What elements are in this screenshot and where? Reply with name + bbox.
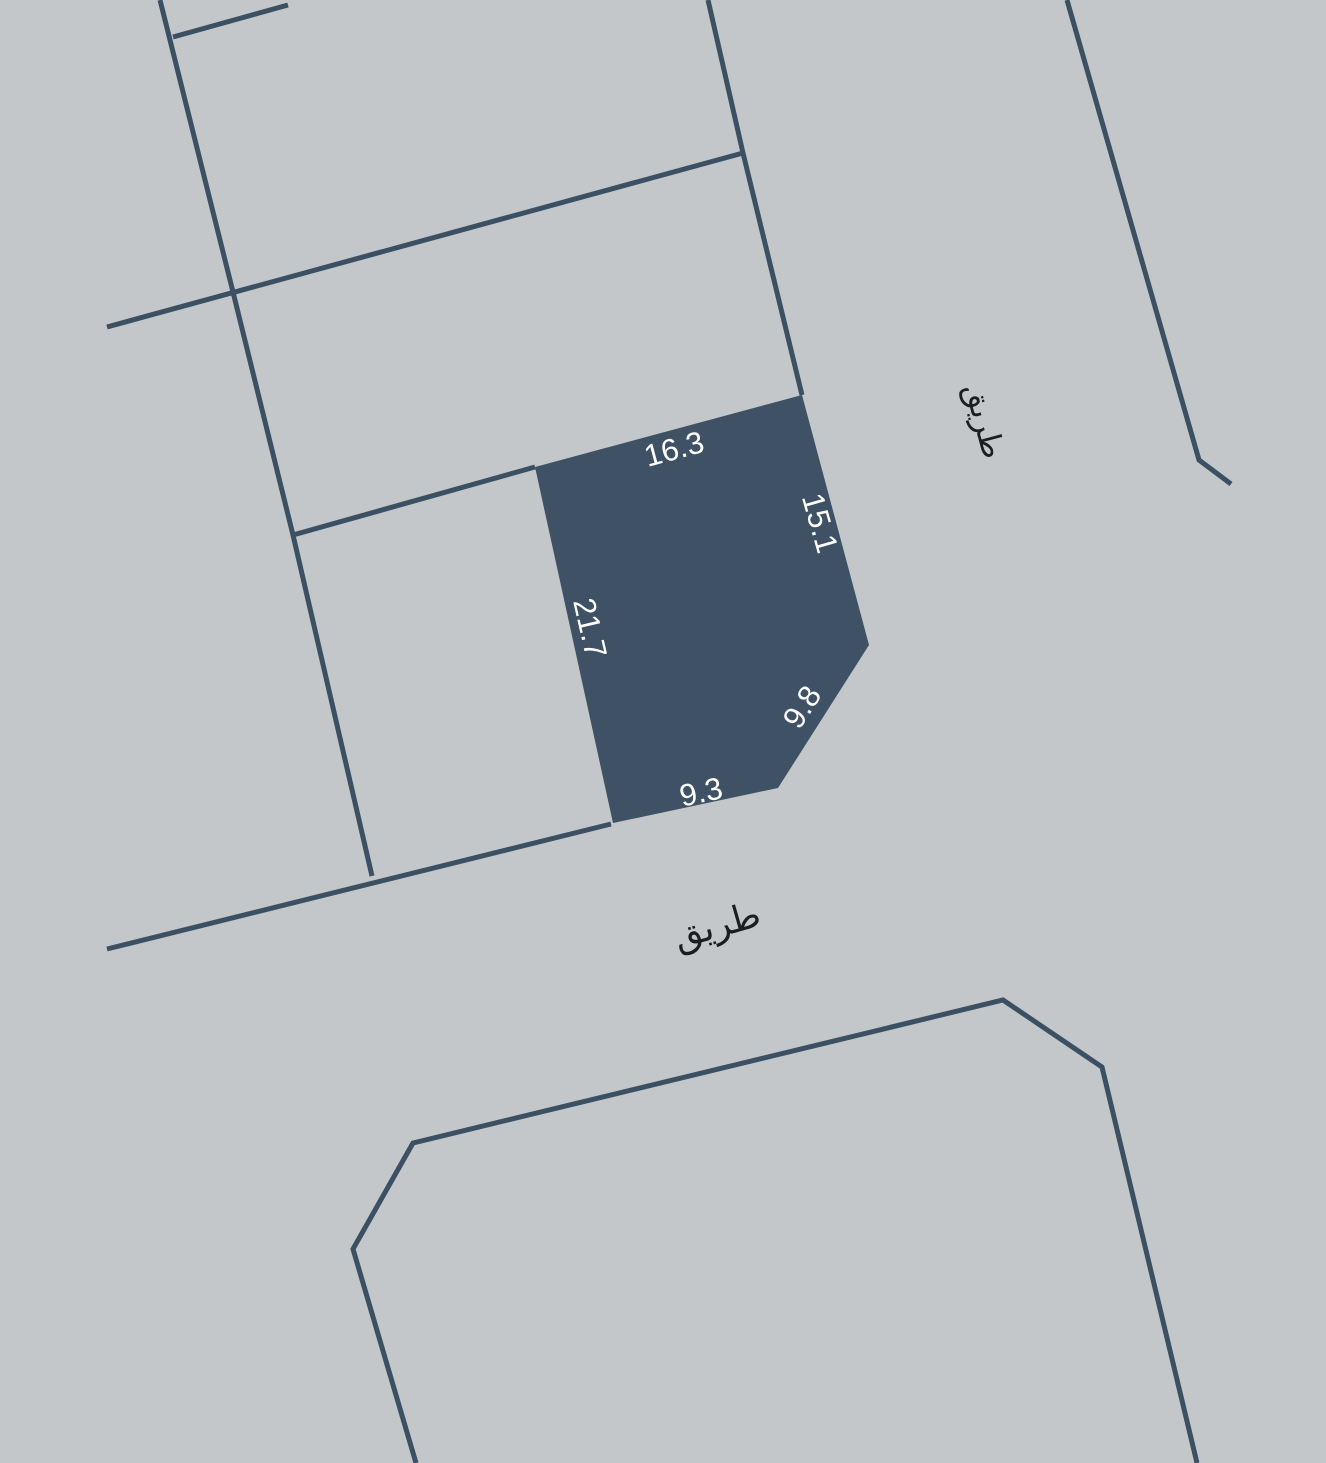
south-block-boundary xyxy=(353,1000,1197,1463)
south-street-boundary xyxy=(107,824,611,949)
road-name-label: طريق xyxy=(957,380,1012,463)
north-short-boundary xyxy=(173,5,288,37)
northeast-parcel-boundary xyxy=(708,0,802,395)
road-name-label: طريق xyxy=(669,894,765,958)
east-street-boundary xyxy=(1067,0,1231,484)
west-parcel-boundary xyxy=(293,467,535,535)
parcel-dimension-label: 9.3 xyxy=(676,770,725,813)
west-block-boundary xyxy=(160,0,372,876)
cadastral-map: 16.315.121.79.89.3طريقطريق xyxy=(0,0,1326,1463)
map-svg: 16.315.121.79.89.3طريقطريق xyxy=(0,0,1326,1463)
